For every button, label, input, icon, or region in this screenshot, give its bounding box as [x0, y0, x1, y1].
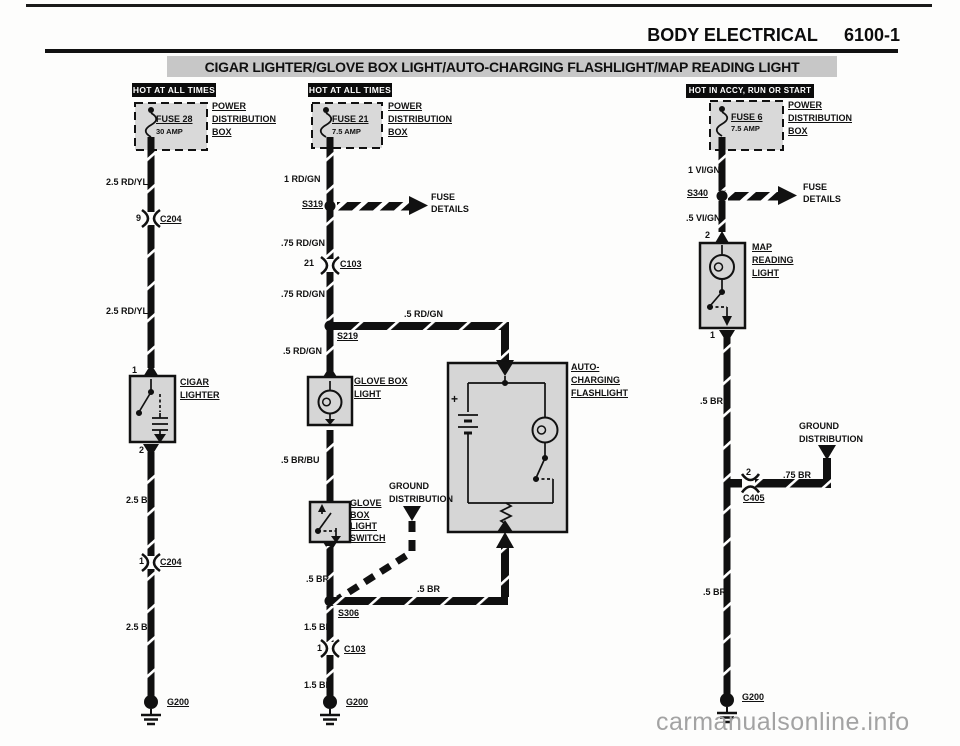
ground-distribution-label-col2: GROUND DISTRIBUTION	[389, 480, 453, 506]
pin-label-9: 9	[136, 212, 141, 225]
ground-distribution-arrow-col2	[403, 506, 421, 521]
splice-label-s340: S340	[687, 187, 708, 200]
wire-label-.75-rdgn-b: .75 RD/GN	[281, 288, 325, 301]
ground-distribution-label-col3: GROUND DISTRIBUTION	[799, 420, 863, 446]
wire-maplight-to-c405	[724, 334, 731, 477]
wire-label-1.5-br-b: 1.5 BR	[304, 679, 332, 692]
connector-label-c204-b: C204	[160, 556, 182, 569]
cigar-lighter-box	[130, 376, 175, 442]
wire-label-2.5-rdyl-a: 2.5 RD/YL	[106, 176, 148, 189]
ground-label-g200-col3: G200	[742, 691, 764, 704]
maplight-top-connector-arrow	[715, 231, 729, 243]
pin-label-1-c204: 1	[139, 555, 144, 568]
wire-label-.75-rdgn-a: .75 RD/GN	[281, 237, 325, 250]
wire-label-2.5-rdyl-b: 2.5 RD/YL	[106, 305, 148, 318]
fuse28-terminal-dot	[148, 107, 154, 113]
ground-distribution-arrow-col3	[818, 445, 836, 460]
wire-fuse21-to-glovelight	[327, 137, 334, 377]
splice-s319-dot	[325, 201, 336, 212]
fuse6-rating-label: 7.5 AMP	[731, 124, 760, 134]
splice-label-s306: S306	[338, 607, 359, 620]
wire-label-1-vign: 1 VI/GN	[688, 164, 720, 177]
wire-label-1-rdgn: 1 RD/GN	[284, 173, 321, 186]
fuse6-terminal-dot	[719, 106, 725, 112]
cigar-pin-2-label: 2	[139, 444, 144, 457]
wire-label-.5-br-switch: .5 BR	[306, 573, 329, 586]
wire-label-.5-br-horizontal: .5 BR	[417, 583, 440, 596]
fuse-details-label-col2: FUSE DETAILS	[431, 192, 469, 215]
wire-label-2.5-br-a: 2.5 BR	[126, 494, 154, 507]
ground-label-g200-col1: G200	[167, 696, 189, 709]
auto-charging-flashlight-box	[448, 363, 567, 532]
schematic-page: BODY ELECTRICAL6100-1 CIGAR LIGHTER/GLOV…	[0, 0, 960, 746]
wire-label-.5-rdgn: .5 RD/GN	[283, 345, 322, 358]
wire-label-.5-br-col3-a: .5 BR	[700, 395, 723, 408]
glove-box-light-switch-box	[310, 502, 350, 542]
connector-label-c405: C405	[743, 492, 765, 505]
auto-charging-flashlight-label: AUTO- CHARGING FLASHLIGHT	[571, 361, 628, 400]
wire-label-.75-br: .75 BR	[783, 469, 811, 482]
ground-label-g200-col2: G200	[346, 696, 368, 709]
maplight-pin-2-label: 2	[705, 229, 710, 242]
wire-glovelight-to-switch	[327, 430, 334, 502]
glove-box-light-switch-label: GLOVE BOX LIGHT SWITCH	[350, 498, 386, 544]
fuse21-name-label: FUSE 21	[332, 113, 369, 126]
connector-label-c204-a: C204	[160, 213, 182, 226]
wire-label-.5-rdgn-branch: .5 RD/GN	[404, 308, 443, 321]
splice-s340-dot	[717, 191, 728, 202]
wire-label-.5-vign: .5 VI/GN	[686, 212, 721, 225]
glove-box-light-label: GLOVE BOX LIGHT	[354, 375, 408, 401]
power-distribution-box-label-1: POWER DISTRIBUTION BOX	[212, 100, 276, 139]
pin-label-21: 21	[304, 257, 314, 270]
wire-branch-to-flashlight-top	[501, 322, 509, 362]
wire-s219-branch-horizontal	[330, 322, 508, 330]
wire-to-ground-distribution-col3	[823, 458, 831, 488]
ground-g200-symbol-col2	[320, 695, 340, 724]
map-reading-light-label: MAP READING LIGHT	[752, 241, 794, 280]
watermark: carmanualsonline.info	[656, 708, 910, 737]
flashlight-bottom-entry-arrow	[496, 532, 514, 548]
splice-label-s219: S219	[337, 330, 358, 343]
fuse-details-arrow-col2	[409, 196, 428, 215]
wire-label-1.5-br-a: 1.5 BR	[304, 621, 332, 634]
wire-label-2.5-br-b: 2.5 BR	[126, 621, 154, 634]
fuse-details-arrow-col3	[778, 186, 797, 205]
cigar-lighter-label: CIGAR LIGHTER	[180, 376, 220, 402]
fuse-details-link-col2	[337, 202, 409, 211]
ground-g200-symbol-col1	[141, 695, 161, 724]
power-distribution-box-label-3: POWER DISTRIBUTION BOX	[788, 99, 852, 138]
badge-hot-at-all-times-1: HOT AT ALL TIMES	[132, 83, 216, 97]
badge-hot-at-all-times-2: HOT AT ALL TIMES	[308, 83, 392, 97]
pin-label-2-c405: 2	[746, 466, 751, 479]
fuse21-terminal-dot	[323, 107, 329, 113]
wire-flashlight-bottom-vertical	[501, 546, 509, 597]
wire-label-.5-brbu: .5 BR/BU	[281, 454, 320, 467]
wire-label-.5-br-col3-b: .5 BR	[703, 586, 726, 599]
badge-hot-in-accy-run-start: HOT IN ACCY, RUN OR START	[686, 84, 814, 98]
connector-label-c103-a: C103	[340, 258, 362, 271]
fuse21-rating-label: 7.5 AMP	[332, 127, 361, 137]
cigar-pin-1-label: 1	[132, 364, 137, 377]
connector-label-c103-b: C103	[344, 643, 366, 656]
fuse-details-link-col3	[728, 192, 778, 201]
fuse-details-label-col3: FUSE DETAILS	[803, 182, 841, 205]
glovelight-top-connector-arrow	[323, 366, 337, 377]
splice-label-s319: S319	[302, 198, 323, 211]
battery-plus-label: +	[451, 393, 458, 406]
maplight-pin-1-label: 1	[710, 329, 715, 342]
fuse28-name-label: FUSE 28	[156, 113, 193, 126]
power-distribution-box-label-2: POWER DISTRIBUTION BOX	[388, 100, 452, 139]
wire-s306-to-flashlight-horizontal	[330, 597, 508, 605]
pin-label-1-c103: 1	[317, 642, 322, 655]
fuse28-rating-label: 30 AMP	[156, 127, 183, 137]
wire-cigar-to-ground	[148, 452, 155, 697]
fuse6-name-label: FUSE 6	[731, 111, 763, 124]
wire-fuse28-to-cigar	[148, 137, 155, 368]
